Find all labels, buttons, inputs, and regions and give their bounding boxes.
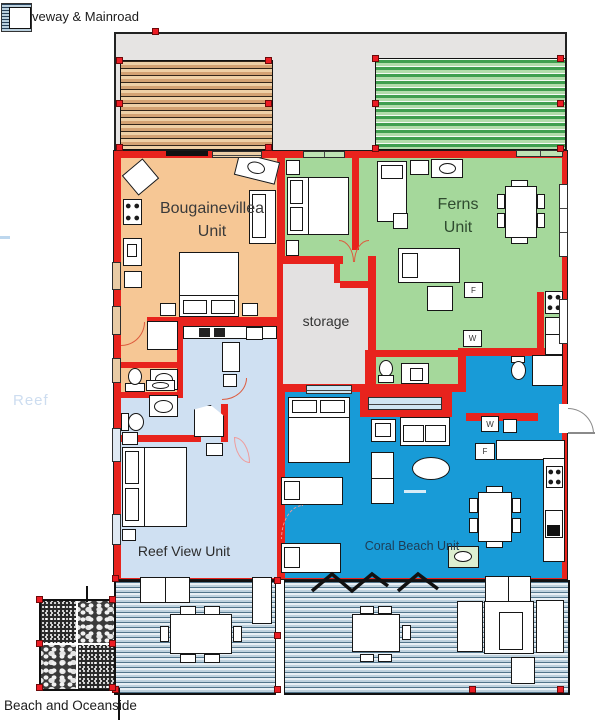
marker-dot [557, 145, 564, 152]
sun-lounger [536, 600, 564, 653]
shower [147, 321, 178, 350]
marker-dot [152, 28, 159, 35]
oven-door [547, 525, 560, 536]
sink-bowl [439, 163, 456, 174]
driveway-label: veway & Mainroad [32, 9, 139, 24]
fridge-icon [222, 342, 240, 372]
marker-dot [112, 575, 119, 582]
marker-dot [557, 100, 564, 107]
dining-table [478, 492, 512, 542]
sink-bowl [152, 382, 169, 389]
pillow [183, 300, 207, 314]
marker-dot [36, 596, 43, 603]
stone-texture [78, 601, 114, 644]
door-pane-divider [165, 578, 166, 602]
door-arc [568, 408, 594, 434]
door-opening [559, 404, 568, 433]
marker-dot [274, 632, 281, 639]
outdoor-table [352, 614, 400, 652]
washer-box: W [481, 416, 499, 432]
sofa [400, 417, 450, 446]
double-bed [288, 397, 350, 463]
toilet-icon [125, 368, 147, 392]
bathroom-sink [401, 363, 429, 384]
marker-dot [109, 596, 116, 603]
dining-table-set [469, 486, 521, 548]
toilet-icon [121, 411, 146, 433]
toilet-bowl [128, 413, 144, 431]
double-bed [122, 447, 187, 527]
window [516, 150, 563, 157]
single-bed [398, 248, 460, 283]
cabinet-divider [372, 478, 393, 479]
marker-dot [109, 640, 116, 647]
cabinet [124, 271, 142, 288]
outdoor-dining-set [344, 604, 414, 662]
seat [375, 423, 391, 437]
marker-dot [372, 145, 379, 152]
window [112, 514, 121, 545]
beach-oceanside-label: Beach and Oceanside [4, 698, 137, 713]
chair [360, 654, 374, 662]
sun-lounger [457, 601, 483, 652]
chair [512, 518, 521, 533]
pillow [125, 451, 139, 484]
window [306, 385, 352, 394]
cabinet [393, 213, 408, 229]
fridge-box: F [464, 282, 483, 298]
ferns-unit-label: Ferns Unit [408, 193, 508, 239]
sink-basin [127, 244, 137, 257]
label-line: Unit [134, 220, 290, 243]
bougainevillea-unit-label: Bougainevillea Unit [134, 197, 290, 243]
pillow [125, 488, 139, 521]
chair [160, 626, 169, 642]
marker-dot [265, 144, 272, 151]
marker-dot [372, 100, 379, 107]
deck-side-table [511, 657, 535, 684]
carport-right [375, 58, 566, 150]
outdoor-dining-set [160, 602, 242, 664]
toilet-bowl [511, 361, 526, 380]
pillow [290, 180, 303, 204]
washer-box: W [463, 330, 482, 347]
gravel-texture [78, 645, 114, 689]
single-bed [281, 477, 343, 505]
label-line: Unit [408, 216, 508, 239]
outdoor-table [170, 614, 232, 654]
wall [365, 357, 372, 384]
beach-path [39, 599, 116, 691]
pillow [402, 253, 418, 278]
chair [512, 498, 521, 513]
chair [537, 213, 545, 228]
window [303, 151, 345, 158]
toilet-tank [378, 375, 394, 383]
oven-icon [545, 510, 563, 538]
door-threshold [166, 151, 208, 156]
dining-table [505, 186, 537, 238]
folding-door-zigzag [308, 569, 448, 595]
legend-icon-inner [9, 7, 31, 29]
wall [352, 158, 359, 250]
cushion [403, 425, 424, 442]
chair [360, 606, 374, 614]
sliding-door [140, 577, 190, 603]
pillow [290, 207, 303, 231]
toilet-bowl [128, 368, 142, 385]
window [112, 262, 121, 290]
window [368, 397, 442, 410]
lounger-pad [499, 612, 523, 650]
wall [466, 413, 538, 421]
reef-view-unit-label: Reef View Unit [128, 543, 240, 559]
marker-dot [36, 640, 43, 647]
marker-dot [265, 100, 272, 107]
floor-plan: veway & Mainroad [0, 0, 603, 720]
cabinet [371, 452, 394, 504]
cushion [425, 425, 446, 442]
window [212, 151, 262, 158]
chair [469, 518, 478, 533]
cabinet [427, 286, 453, 311]
duvet-line [308, 178, 309, 234]
double-bed [179, 252, 239, 317]
label-line: Ferns [408, 193, 508, 216]
window [559, 299, 568, 344]
marker-dot [116, 57, 123, 64]
rug-mark [404, 490, 426, 493]
sink-basin [410, 368, 423, 381]
cooktop [199, 328, 210, 337]
door-leaf [568, 432, 595, 434]
cabinet [246, 327, 263, 340]
sink-bowl [246, 160, 266, 176]
deck-planter [252, 577, 272, 624]
duvet-line [180, 295, 238, 296]
coffee-table [412, 457, 450, 480]
pillow [381, 165, 403, 179]
storage-label: storage [283, 313, 369, 329]
wall [283, 256, 343, 264]
driveway-legend-icon [1, 3, 32, 32]
marker-dot [274, 686, 281, 693]
reef-edge-mark [0, 236, 10, 239]
toilet-icon [377, 360, 395, 385]
stove-icon [546, 466, 563, 488]
chair [402, 625, 411, 640]
nightstand [160, 303, 176, 316]
marker-dot [557, 55, 564, 62]
marker-dot [265, 57, 272, 64]
window [112, 358, 121, 383]
wall [458, 356, 466, 392]
nightstand [122, 529, 136, 541]
marker-dot [469, 686, 476, 693]
cabinet [410, 160, 429, 175]
cabinet [503, 419, 517, 433]
boundary-line [86, 586, 88, 602]
wall [365, 350, 458, 357]
wall [537, 292, 544, 348]
wall [340, 281, 368, 288]
vanity-sink [431, 159, 463, 178]
marker-dot [36, 684, 43, 691]
marker-dot [274, 577, 281, 584]
chair [378, 654, 392, 662]
nightstand [286, 160, 300, 175]
pillow [320, 400, 345, 413]
deck-window [485, 576, 531, 602]
sink-bowl [154, 400, 173, 413]
chair [378, 606, 392, 614]
double-bed [287, 177, 349, 235]
window [112, 306, 121, 335]
cooktop [214, 328, 225, 337]
marker-dot [109, 684, 116, 691]
window [112, 428, 121, 462]
duvet-line [144, 448, 145, 526]
pillow [284, 547, 300, 568]
chair [537, 194, 545, 209]
kitchen-counter [496, 440, 565, 460]
nightstand [122, 432, 138, 445]
cabinet [206, 443, 223, 456]
marker-dot [116, 144, 123, 151]
bathroom-sink [149, 395, 178, 417]
bougainevillea-door-gap [121, 317, 147, 326]
marker-dot [116, 100, 123, 107]
marker-dot [372, 55, 379, 62]
fridge-box: F [475, 443, 495, 460]
marker-dot [557, 686, 564, 693]
label-line: Bougainevillea [134, 197, 290, 220]
chair [204, 654, 220, 663]
shower [532, 355, 563, 386]
bathroom-sink [146, 380, 175, 391]
stone-texture [41, 645, 77, 689]
pane-divider [508, 577, 509, 601]
pillow [292, 400, 317, 413]
chair [180, 654, 196, 663]
pillow [284, 481, 300, 500]
toilet-icon [510, 356, 527, 382]
pillow [211, 300, 235, 314]
nightstand [242, 303, 258, 316]
chair [233, 626, 242, 642]
reef-label: Reef [13, 392, 49, 409]
window [559, 184, 568, 257]
sun-lounger [484, 601, 534, 654]
coral-beach-unit-label: Coral Beach Unit [352, 539, 472, 553]
chair [469, 498, 478, 513]
gravel-texture [41, 601, 77, 644]
carport-left [120, 60, 273, 150]
cabinet [223, 374, 237, 387]
armchair [371, 419, 396, 442]
duvet-line [289, 417, 349, 418]
